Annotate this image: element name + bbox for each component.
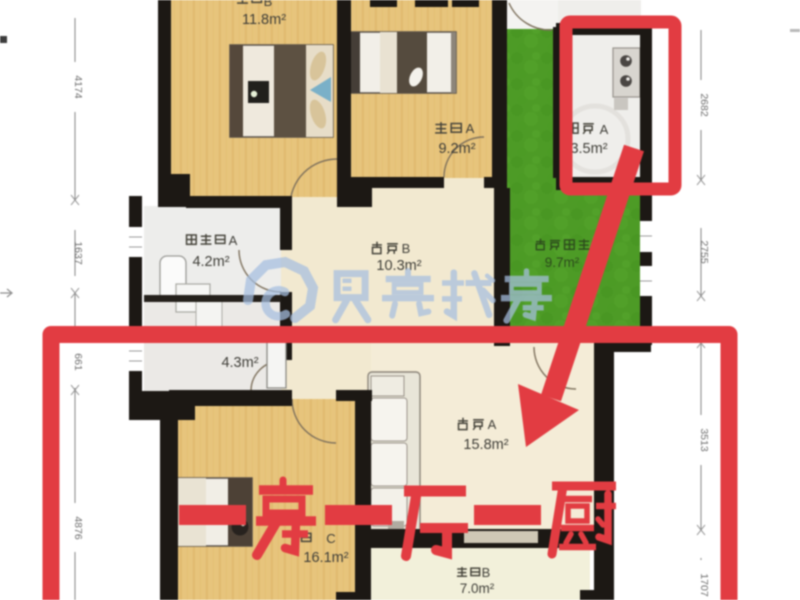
svg-text:3513: 3513	[698, 428, 710, 452]
svg-text:16.1m²: 16.1m²	[303, 550, 348, 566]
svg-text:661: 661	[72, 353, 84, 371]
svg-text:A: A	[600, 122, 609, 137]
svg-text:A: A	[488, 417, 497, 432]
svg-text:B: B	[482, 565, 491, 580]
svg-text:4876: 4876	[72, 516, 84, 540]
svg-text:2682: 2682	[698, 93, 710, 117]
svg-text:1637: 1637	[72, 241, 84, 265]
svg-text:2755: 2755	[698, 240, 710, 264]
svg-text:9.7m²: 9.7m²	[545, 255, 580, 270]
svg-text:B: B	[402, 241, 411, 256]
svg-text:9.2m²: 9.2m²	[438, 141, 475, 157]
svg-text:15.8m²: 15.8m²	[463, 437, 508, 453]
svg-text:7.0m²: 7.0m²	[460, 581, 495, 596]
svg-text:B: B	[264, 0, 273, 9]
svg-text:10.3m²: 10.3m²	[376, 258, 421, 274]
svg-text:1707: 1707	[698, 573, 710, 597]
svg-text:A: A	[466, 121, 475, 136]
svg-text:4.2m²: 4.2m²	[192, 254, 229, 270]
svg-text:4.3m²: 4.3m²	[221, 355, 258, 371]
svg-text:C: C	[326, 531, 335, 546]
svg-text:4174: 4174	[72, 75, 84, 99]
svg-text:3.5m²: 3.5m²	[570, 141, 607, 157]
svg-text:11.8m²: 11.8m²	[242, 12, 286, 28]
svg-text:A: A	[229, 233, 238, 248]
